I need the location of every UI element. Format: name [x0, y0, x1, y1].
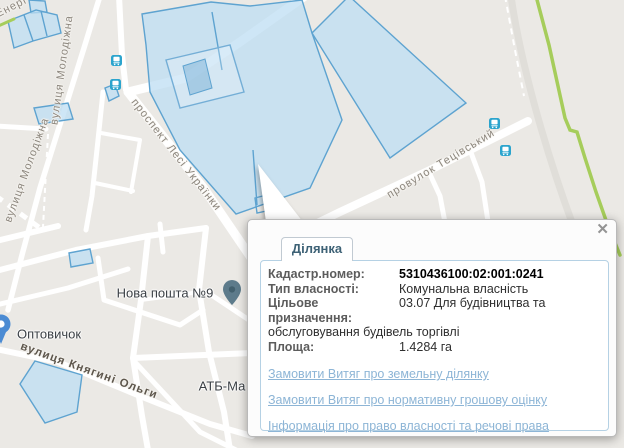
poi-label-nova-poshta[interactable]: Нова пошта №9: [117, 286, 214, 301]
shop-pin-icon[interactable]: [0, 313, 12, 346]
popup-content: Кадастр.номер:5310436100:02:001:0241 Тип…: [260, 260, 609, 431]
link-order-parcel-extract[interactable]: Замовити Витяг про земельну ділянку: [268, 367, 489, 381]
bus-stop-icon[interactable]: [110, 79, 121, 90]
field-ownership-type: Тип власності:Комунальна власність: [268, 282, 601, 297]
tab-parcel[interactable]: Ділянка: [281, 237, 353, 261]
place-pin-icon[interactable]: [222, 279, 242, 306]
cadastral-map-app: Енерг вулиця Молодіжна вулиця Молодіжна …: [0, 0, 624, 448]
poi-label-atb[interactable]: АТБ-Ма: [199, 379, 246, 394]
field-area: Площа:1.4284 га: [268, 340, 601, 355]
link-ownership-rights-info[interactable]: Інформація про право власності та речові…: [268, 419, 549, 433]
bus-stop-icon[interactable]: [500, 145, 511, 156]
bus-stop-icon[interactable]: [489, 118, 500, 129]
bus-stop-icon[interactable]: [111, 55, 122, 66]
field-cadastral-number: Кадастр.номер:5310436100:02:001:0241: [268, 267, 601, 282]
field-designated-use: Цільове призначення:03.07 Для будівництв…: [268, 296, 601, 340]
poi-label-optovychok[interactable]: Оптовичок: [17, 327, 81, 342]
link-order-valuation-extract[interactable]: Замовити Витяг про нормативну грошову оц…: [268, 393, 547, 407]
close-icon[interactable]: ✕: [596, 222, 609, 238]
popup-callout-arrow: [250, 158, 320, 228]
parcel-info-popup: ✕ Ділянка Кадастр.номер:5310436100:02:00…: [247, 219, 617, 437]
